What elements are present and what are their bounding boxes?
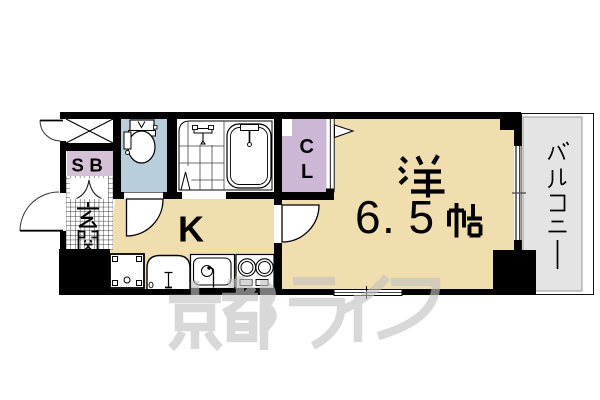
svg-text:.: . <box>382 191 395 243</box>
svg-text:SB: SB <box>72 155 109 176</box>
svg-text:5: 5 <box>409 191 435 243</box>
svg-text:K: K <box>178 209 204 250</box>
svg-text:6: 6 <box>355 191 381 243</box>
svg-text:L: L <box>301 161 313 183</box>
svg-text:C: C <box>300 136 314 158</box>
